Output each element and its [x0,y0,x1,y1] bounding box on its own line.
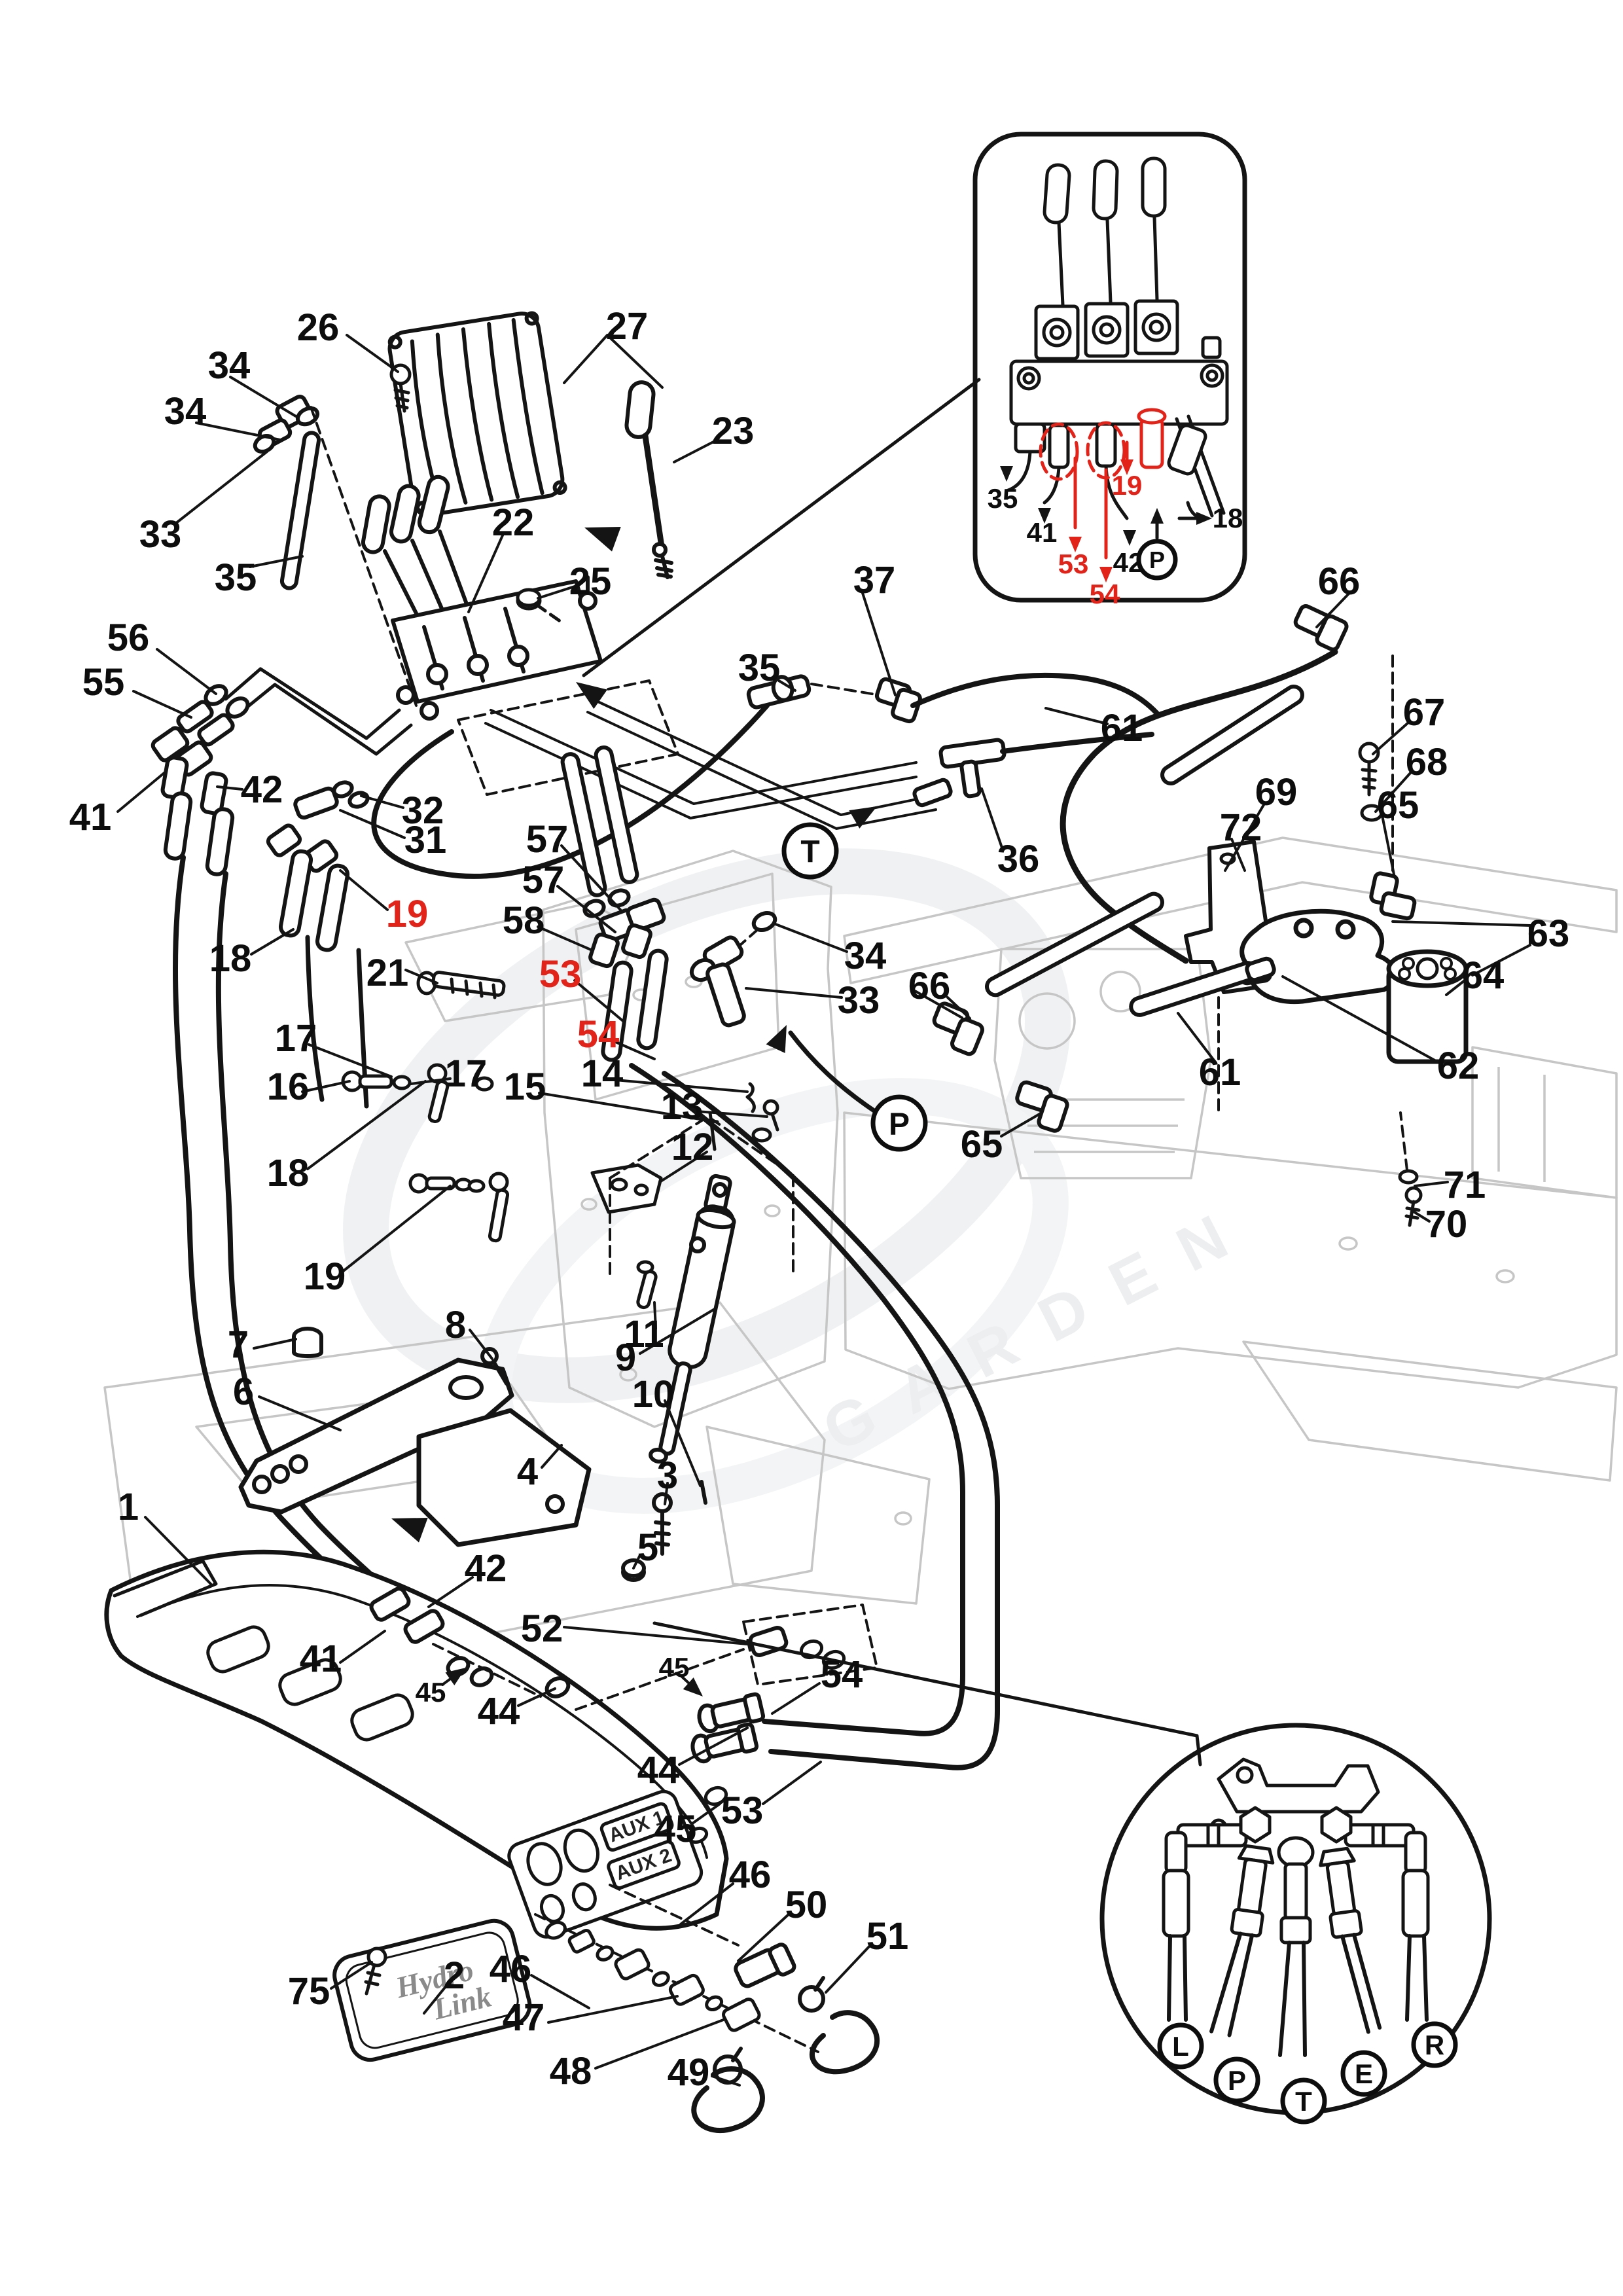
part-label-33: 33 [838,979,880,1022]
part-label-18: 18 [267,1152,310,1194]
part-label-37: 37 [853,559,896,601]
part-label-68: 68 [1406,741,1448,783]
part-label-10: 10 [632,1373,675,1416]
part-label-23: 23 [712,410,755,452]
part-label-1: 1 [118,1486,139,1528]
part-label-53: 53 [721,1789,764,1832]
part-label-66: 66 [908,965,951,1007]
part-label-19: 19 [304,1255,346,1298]
part-label-42: 42 [465,1547,507,1590]
svg-text:T: T [800,834,819,869]
port-letter-R: R [1414,2024,1455,2066]
port-letter-L: L [1160,2025,1202,2067]
part-label-42: 42 [241,768,283,811]
part-label-7: 7 [228,1323,249,1366]
part-label-35: 35 [215,556,257,599]
part-label-21: 21 [366,952,409,994]
svg-text:P: P [889,1107,910,1141]
parts-35-37-36-T [747,675,1157,806]
part-label-17: 17 [275,1017,317,1060]
part-label-70: 70 [1425,1203,1468,1246]
port-letter-E: E [1343,2053,1385,2094]
part-label-45: 45 [416,1677,446,1708]
part-label-58: 58 [503,899,545,942]
part-label-48: 48 [550,2050,592,2092]
part-label-54: 54 [821,1653,863,1696]
part-label-16: 16 [267,1066,310,1108]
parts-diagram-page: GARDEN [0,0,1623,2296]
part-label-36: 36 [997,838,1040,880]
part-label-34: 34 [208,344,251,387]
inset-valve-detail [975,134,1245,600]
part-21-bolt [418,972,505,997]
part-label-72: 72 [1220,806,1262,849]
part-label-35: 35 [738,647,781,689]
part-label-46: 46 [490,1948,532,1990]
part-label-19: 19 [386,893,429,935]
part-label-67: 67 [1403,691,1446,734]
part-label-57: 57 [526,818,569,861]
part-label-34: 34 [844,935,887,977]
part-35-link-rod [253,395,416,706]
part-label-6: 6 [233,1371,254,1413]
part-label-65: 65 [1377,784,1419,827]
part-label-33: 33 [139,513,182,556]
part-label-34: 34 [164,390,207,433]
part-label-53: 53 [1058,548,1089,579]
part-label-64: 64 [1462,954,1505,997]
part-66-rod-top [1063,604,1348,961]
left-fittings-cluster [151,682,251,875]
part-label-35: 35 [988,483,1018,514]
part-label-53: 53 [539,953,582,996]
part-label-44: 44 [478,1690,520,1732]
part-label-12: 12 [671,1126,714,1168]
svg-text:E: E [1355,2058,1373,2089]
port-letter-P: P [1139,541,1175,578]
part-label-41: 41 [69,796,112,838]
part-label-44: 44 [637,1749,680,1791]
part-label-8: 8 [445,1304,466,1346]
part-label-4: 4 [517,1450,538,1493]
part-label-18: 18 [209,937,252,980]
part-label-54: 54 [577,1013,620,1056]
svg-text:R: R [1425,2030,1444,2060]
part-label-56: 56 [107,617,150,659]
hydraulic-parts-diagram: GARDEN [0,0,1623,2296]
part-label-49: 49 [668,2051,710,2094]
part-label-19: 19 [1112,470,1143,501]
svg-text:L: L [1172,2031,1189,2062]
part-label-51: 51 [866,1915,909,1958]
part-label-17: 17 [445,1052,488,1095]
part-label-52: 52 [521,1607,563,1650]
part-label-75: 75 [288,1970,330,2013]
part-label-13: 13 [661,1085,704,1128]
svg-text:P: P [1228,2065,1246,2096]
part-label-71: 71 [1444,1164,1486,1206]
part-label-18: 18 [1213,503,1243,533]
svg-text:P: P [1149,547,1165,573]
part-label-27: 27 [606,305,649,348]
part-label-2: 2 [444,1954,465,1997]
part-label-66: 66 [1318,560,1361,603]
port-letter-T: T [1283,2080,1325,2122]
part-label-50: 50 [785,1884,828,1926]
port-letter-P: P [873,1097,925,1149]
part-label-46: 46 [729,1854,772,1896]
part-label-22: 22 [492,501,535,544]
part-label-41: 41 [1027,517,1058,548]
part-label-54: 54 [1090,579,1120,609]
part-label-61: 61 [1101,707,1143,749]
part-label-3: 3 [657,1454,678,1497]
part-label-41: 41 [300,1638,342,1680]
part-label-57: 57 [522,859,565,901]
part-label-65: 65 [961,1123,1003,1166]
part-label-61: 61 [1199,1051,1241,1094]
part-label-47: 47 [503,1996,545,2039]
svg-text:T: T [1295,2086,1312,2117]
part-label-26: 26 [297,306,340,349]
part-label-14: 14 [581,1052,624,1095]
part-label-31: 31 [404,819,447,861]
port-letter-T: T [784,825,836,877]
part-33-34-fitting [688,910,777,1027]
part-label-25: 25 [569,560,612,603]
part-label-62: 62 [1437,1045,1480,1087]
part-label-45: 45 [654,1808,697,1850]
part-1-bumper: AUX 1 AUX 2 [107,1552,726,1941]
port-letter-P: P [1216,2059,1258,2101]
part-label-63: 63 [1527,912,1570,955]
part-label-55: 55 [82,661,125,704]
part-63-filter-head [1240,911,1395,1001]
part-23-lever [626,381,671,577]
hose-line-b [243,685,411,754]
parts-70-71-bolt [1400,1113,1421,1225]
part-label-45: 45 [659,1652,690,1683]
part-label-15: 15 [504,1066,546,1108]
part-label-5: 5 [637,1526,658,1569]
